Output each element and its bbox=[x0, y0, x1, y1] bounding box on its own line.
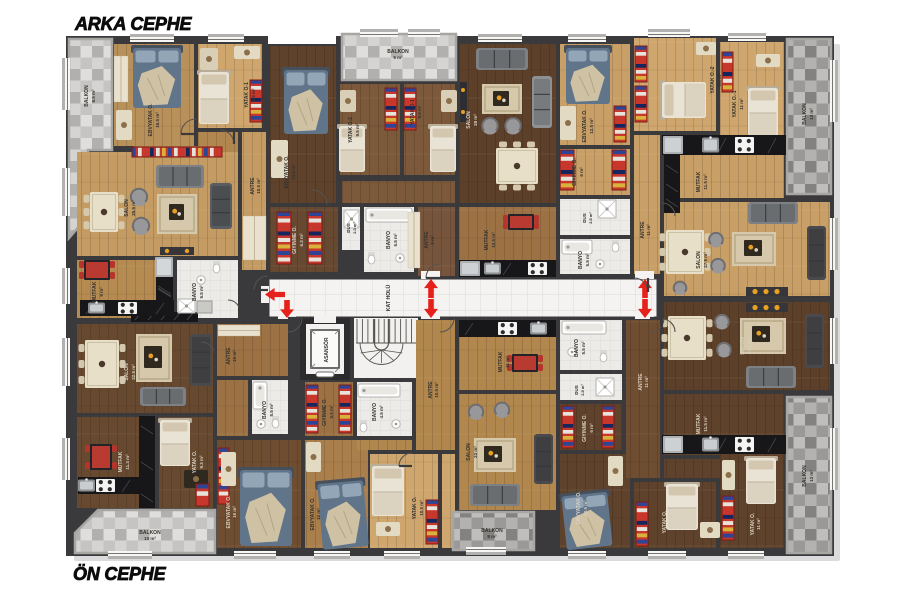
svg-text:9.3 m²: 9.3 m² bbox=[199, 455, 204, 469]
svg-text:9 m²: 9 m² bbox=[393, 55, 403, 60]
svg-text:13 m²: 13 m² bbox=[809, 470, 814, 482]
svg-text:DUS: DUS bbox=[346, 223, 351, 233]
svg-text:11.5 m²: 11.5 m² bbox=[703, 174, 708, 190]
svg-text:12.5 m²: 12.5 m² bbox=[491, 232, 496, 248]
svg-text:BANYO: BANYO bbox=[578, 251, 584, 269]
svg-text:BALKON: BALKON bbox=[802, 465, 808, 487]
svg-text:23 m²: 23 m² bbox=[473, 446, 478, 458]
svg-text:9.5 m²: 9.5 m² bbox=[417, 105, 422, 119]
svg-text:8.5 m²: 8.5 m² bbox=[91, 89, 96, 103]
svg-text:SALON: SALON bbox=[466, 443, 472, 461]
svg-text:13 m²: 13 m² bbox=[809, 108, 814, 120]
svg-text:9.5 m²: 9.5 m² bbox=[717, 73, 722, 87]
svg-text:11.3 m²: 11.3 m² bbox=[125, 454, 130, 470]
svg-text:10 m²: 10 m² bbox=[232, 350, 237, 362]
svg-text:9.5 m²: 9.5 m² bbox=[669, 515, 674, 529]
svg-text:EBVYATAK O.: EBVYATAK O. bbox=[582, 109, 588, 143]
svg-text:YATAK O-1: YATAK O-1 bbox=[244, 82, 250, 108]
svg-text:EBVYATAK O.: EBVYATAK O. bbox=[148, 103, 154, 137]
svg-text:9.5 m²: 9.5 m² bbox=[251, 88, 256, 102]
svg-text:BANYO: BANYO bbox=[372, 403, 378, 421]
svg-text:5.5 m²: 5.5 m² bbox=[581, 341, 586, 355]
svg-text:6.3 m²: 6.3 m² bbox=[299, 233, 304, 247]
svg-text:16 m²: 16 m² bbox=[232, 506, 237, 518]
svg-text:BALKON: BALKON bbox=[802, 103, 808, 125]
svg-text:22.5 m²: 22.5 m² bbox=[131, 364, 136, 380]
svg-text:GIYINME O.: GIYINME O. bbox=[322, 397, 328, 425]
svg-text:EBVYATAK O.: EBVYATAK O. bbox=[284, 155, 290, 189]
svg-text:9 m²: 9 m² bbox=[430, 235, 435, 245]
svg-text:YATAK O.-1: YATAK O.-1 bbox=[732, 90, 738, 117]
svg-text:6 m²: 6 m² bbox=[589, 423, 594, 433]
svg-text:9 m²: 9 m² bbox=[99, 287, 104, 297]
svg-text:28 m²: 28 m² bbox=[473, 114, 478, 126]
svg-text:GIYINME O.: GIYINME O. bbox=[572, 157, 578, 185]
svg-text:MUTFAK: MUTFAK bbox=[484, 229, 490, 250]
svg-text:BANYO: BANYO bbox=[574, 339, 580, 357]
svg-text:2.5 m²: 2.5 m² bbox=[588, 212, 593, 224]
svg-text:10.5 m²: 10.5 m² bbox=[419, 500, 424, 516]
svg-text:GIYINME O.: GIYINME O. bbox=[292, 225, 298, 253]
svg-text:5.5 m²: 5.5 m² bbox=[199, 285, 204, 299]
svg-text:16.5 m²: 16.5 m² bbox=[155, 112, 160, 128]
svg-text:ARKA CEPHE: ARKA CEPHE bbox=[74, 14, 193, 34]
svg-text:YATAK O.-2: YATAK O.-2 bbox=[710, 66, 716, 93]
svg-text:SALON: SALON bbox=[124, 363, 130, 381]
svg-text:10.5 m²: 10.5 m² bbox=[434, 382, 439, 398]
svg-text:11 m²: 11 m² bbox=[644, 376, 649, 388]
svg-text:11 m²: 11 m² bbox=[739, 98, 744, 110]
svg-text:12.5 m²: 12.5 m² bbox=[583, 500, 588, 516]
svg-text:YATAK O.: YATAK O. bbox=[412, 496, 418, 519]
svg-text:27.5 m²: 27.5 m² bbox=[703, 252, 708, 268]
svg-text:ÖN CEPHE: ÖN CEPHE bbox=[73, 564, 167, 584]
svg-text:6 m²: 6 m² bbox=[579, 167, 584, 177]
svg-text:BANYO: BANYO bbox=[386, 231, 392, 249]
svg-text:10.5 m²: 10.5 m² bbox=[256, 178, 261, 194]
svg-text:ASANSÖR: ASANSÖR bbox=[323, 337, 330, 362]
svg-text:EBVYATAK O.: EBVYATAK O. bbox=[576, 491, 582, 525]
svg-text:GIYINME O.: GIYINME O. bbox=[582, 413, 588, 441]
svg-text:DUS: DUS bbox=[582, 213, 587, 223]
svg-text:SALON: SALON bbox=[466, 111, 472, 129]
svg-text:MUTFAK: MUTFAK bbox=[696, 171, 702, 192]
svg-text:12 m²: 12 m² bbox=[316, 508, 321, 520]
svg-text:MUTFAK: MUTFAK bbox=[118, 451, 124, 472]
svg-text:5.5 m²: 5.5 m² bbox=[585, 253, 590, 267]
svg-text:MUTFAK: MUTFAK bbox=[696, 413, 702, 434]
svg-text:19.5 m²: 19.5 m² bbox=[291, 164, 296, 180]
svg-text:5.5 m²: 5.5 m² bbox=[393, 233, 398, 247]
svg-text:11 m²: 11 m² bbox=[505, 356, 510, 368]
svg-text:KAT HOLÜ: KAT HOLÜ bbox=[385, 285, 392, 312]
svg-text:YATAK O.: YATAK O. bbox=[192, 450, 198, 473]
svg-text:10 m²: 10 m² bbox=[144, 536, 156, 541]
svg-text:SALON: SALON bbox=[740, 337, 746, 355]
svg-text:YATAK O.: YATAK O. bbox=[662, 510, 668, 533]
svg-text:SALON: SALON bbox=[124, 199, 130, 217]
svg-text:YATAK O-1: YATAK O-1 bbox=[410, 99, 416, 125]
svg-text:9.5 m²: 9.5 m² bbox=[355, 123, 360, 137]
svg-text:12.5 m²: 12.5 m² bbox=[589, 118, 594, 134]
svg-text:25.5 m²: 25.5 m² bbox=[131, 200, 136, 216]
svg-text:11.5 m²: 11.5 m² bbox=[703, 416, 708, 432]
svg-text:YATAK O-2: YATAK O-2 bbox=[348, 117, 354, 143]
svg-text:MUTFAK: MUTFAK bbox=[92, 281, 98, 302]
svg-text:SALON: SALON bbox=[696, 251, 702, 269]
svg-text:27.5 m²: 27.5 m² bbox=[747, 338, 752, 354]
svg-text:5.5 m²: 5.5 m² bbox=[329, 405, 334, 419]
svg-text:8 m²: 8 m² bbox=[487, 534, 497, 539]
svg-text:BALKON: BALKON bbox=[84, 85, 90, 107]
svg-text:2.5 m²: 2.5 m² bbox=[580, 384, 585, 396]
svg-text:MUTFAK: MUTFAK bbox=[498, 351, 504, 372]
svg-text:11 m²: 11 m² bbox=[756, 518, 761, 530]
svg-text:5.5 m²: 5.5 m² bbox=[269, 403, 274, 417]
svg-text:DUS: DUS bbox=[574, 385, 579, 395]
svg-text:BANYO: BANYO bbox=[192, 283, 198, 301]
svg-text:BANYO: BANYO bbox=[262, 401, 268, 419]
svg-text:11 m²: 11 m² bbox=[646, 224, 651, 236]
svg-text:2.3 m²: 2.3 m² bbox=[352, 222, 357, 234]
svg-text:4.5 m²: 4.5 m² bbox=[379, 405, 384, 419]
